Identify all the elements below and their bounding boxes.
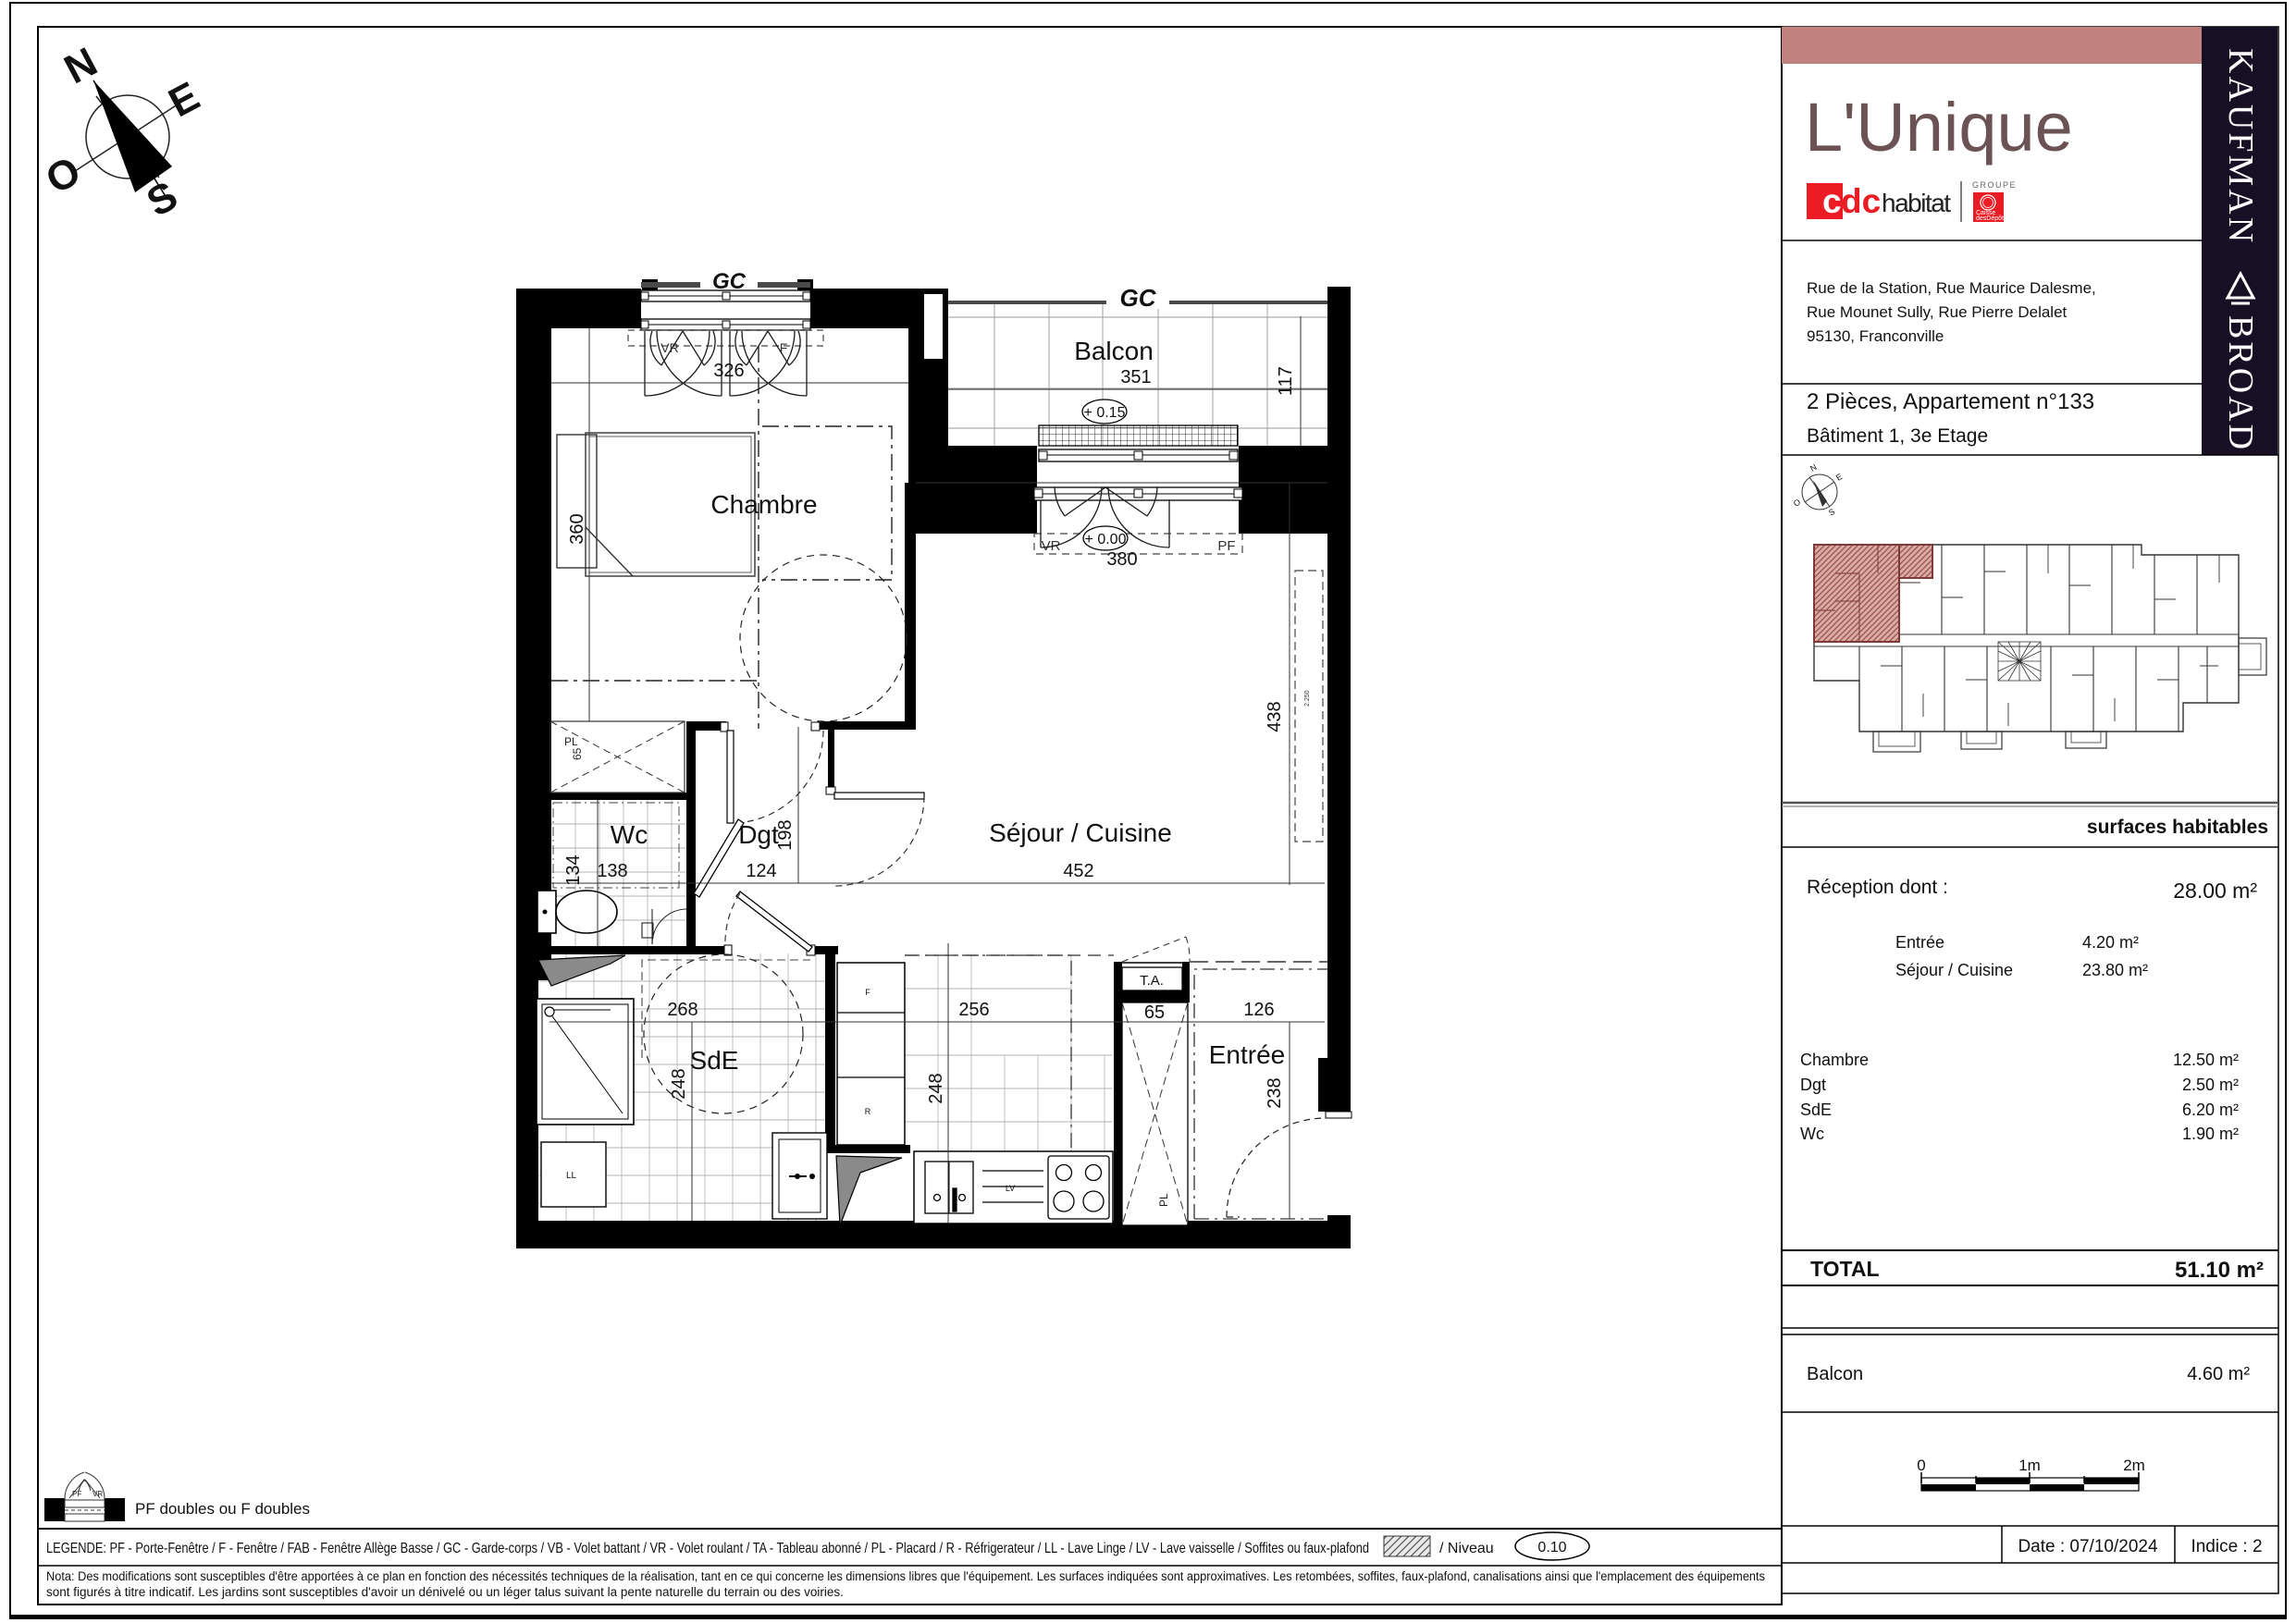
svg-text:SdE: SdE bbox=[1800, 1100, 1832, 1119]
svg-text:248: 248 bbox=[926, 1073, 946, 1103]
svg-text:Bâtiment 1, 3e Etage: Bâtiment 1, 3e Etage bbox=[1807, 425, 1988, 447]
svg-text:Indice : 2: Indice : 2 bbox=[2191, 1537, 2262, 1556]
svg-text:Chambre: Chambre bbox=[1800, 1051, 1869, 1069]
svg-text:LL: LL bbox=[566, 1171, 577, 1181]
svg-text:VR: VR bbox=[93, 1490, 103, 1498]
svg-text:Rue Mounet Sully, Rue Pierre D: Rue Mounet Sully, Rue Pierre Delalet bbox=[1807, 303, 2068, 321]
svg-text:PF: PF bbox=[1217, 538, 1235, 554]
svg-text:95130, Franconville: 95130, Franconville bbox=[1807, 327, 1944, 345]
svg-text:360: 360 bbox=[567, 513, 587, 544]
svg-text:2.250: 2.250 bbox=[1304, 690, 1311, 707]
svg-text:Réception dont :: Réception dont : bbox=[1807, 877, 1948, 898]
svg-text:1m: 1m bbox=[2018, 1457, 2041, 1474]
svg-text:256: 256 bbox=[958, 1000, 989, 1020]
svg-text:+ 0.15: + 0.15 bbox=[1084, 405, 1126, 421]
svg-text:sont figurés à titre indicatif: sont figurés à titre indicatif. Les jard… bbox=[46, 1585, 844, 1599]
svg-text:GROUPE: GROUPE bbox=[1972, 180, 2017, 190]
svg-text:Chambre: Chambre bbox=[710, 490, 817, 519]
svg-text:LEGENDE: PF - Porte-Fenêtre /: LEGENDE: PF - Porte-Fenêtre / F - Fenêtr… bbox=[46, 1541, 1369, 1556]
svg-text:351: 351 bbox=[1120, 367, 1151, 387]
svg-text:Date : 07/10/2024: Date : 07/10/2024 bbox=[2018, 1537, 2157, 1556]
svg-text:452: 452 bbox=[1063, 861, 1093, 881]
svg-text:Wc: Wc bbox=[1800, 1125, 1824, 1143]
svg-text:65: 65 bbox=[571, 747, 584, 760]
svg-text:BROAD: BROAD bbox=[2221, 315, 2260, 452]
svg-text:Séjour / Cuisine: Séjour / Cuisine bbox=[989, 818, 1172, 847]
svg-text:PL: PL bbox=[564, 735, 578, 748]
svg-text:L'Unique: L'Unique bbox=[1805, 89, 2073, 166]
svg-text:2 Pièces, Appartement n°133: 2 Pièces, Appartement n°133 bbox=[1807, 389, 2094, 414]
svg-text:+ 0.00: + 0.00 bbox=[1085, 532, 1127, 547]
svg-text:LV: LV bbox=[1006, 1184, 1015, 1193]
svg-text:T.A.: T.A. bbox=[1140, 973, 1164, 989]
svg-text:248: 248 bbox=[669, 1068, 689, 1099]
svg-text:Entrée: Entrée bbox=[1895, 933, 1944, 952]
svg-text:SdE: SdE bbox=[690, 1046, 739, 1075]
svg-text:0: 0 bbox=[1917, 1457, 1925, 1474]
svg-text:desDépôts: desDépôts bbox=[1976, 215, 2007, 222]
svg-text:Séjour / Cuisine: Séjour / Cuisine bbox=[1895, 961, 2013, 979]
svg-text:Dgt: Dgt bbox=[1800, 1076, 1826, 1094]
svg-text:Nota: Des modifications sont s: Nota: Des modifications sont susceptible… bbox=[46, 1569, 1765, 1583]
svg-text:438: 438 bbox=[1265, 701, 1285, 732]
svg-text:0.10: 0.10 bbox=[1537, 1540, 1566, 1555]
svg-text:4.20 m²: 4.20 m² bbox=[2082, 933, 2139, 952]
svg-text:Entrée: Entrée bbox=[1209, 1040, 1286, 1069]
svg-text:dc: dc bbox=[1841, 182, 1881, 220]
svg-text:PF doubles ou F doubles: PF doubles ou F doubles bbox=[135, 1500, 310, 1518]
svg-text:238: 238 bbox=[1265, 1077, 1285, 1108]
svg-text:51.10 m²: 51.10 m² bbox=[2175, 1258, 2264, 1283]
svg-text:23.80 m²: 23.80 m² bbox=[2082, 961, 2148, 979]
svg-text:124: 124 bbox=[746, 861, 776, 881]
svg-text:c: c bbox=[1822, 182, 1842, 220]
svg-text:198: 198 bbox=[775, 819, 796, 850]
svg-text:117: 117 bbox=[1276, 366, 1296, 396]
svg-text:326: 326 bbox=[713, 361, 744, 381]
svg-text:/ Niveau: / Niveau bbox=[1439, 1541, 1494, 1556]
svg-text:2.50 m²: 2.50 m² bbox=[2182, 1076, 2239, 1094]
svg-text:surfaces habitables: surfaces habitables bbox=[2087, 817, 2268, 838]
svg-text:TOTAL: TOTAL bbox=[1810, 1257, 1880, 1281]
svg-text:1.90 m²: 1.90 m² bbox=[2182, 1125, 2239, 1143]
svg-text:Wc: Wc bbox=[611, 820, 648, 849]
svg-text:65: 65 bbox=[1144, 1002, 1165, 1023]
svg-text:268: 268 bbox=[667, 1000, 697, 1020]
svg-text:2m: 2m bbox=[2123, 1457, 2145, 1474]
svg-text:6.20 m²: 6.20 m² bbox=[2182, 1100, 2239, 1119]
svg-text:PF: PF bbox=[72, 1490, 81, 1498]
svg-text:4.60 m²: 4.60 m² bbox=[2187, 1364, 2250, 1384]
svg-text:R: R bbox=[865, 1107, 871, 1116]
svg-text:138: 138 bbox=[597, 861, 627, 881]
svg-text:12.50 m²: 12.50 m² bbox=[2173, 1051, 2239, 1069]
svg-text:134: 134 bbox=[563, 855, 584, 885]
svg-text:Dgt: Dgt bbox=[738, 820, 779, 849]
svg-text:Balcon: Balcon bbox=[1074, 337, 1154, 365]
svg-text:habitat: habitat bbox=[1882, 189, 1951, 217]
svg-text:F: F bbox=[865, 988, 870, 997]
svg-text:GC: GC bbox=[1120, 284, 1157, 312]
svg-text:PL: PL bbox=[1157, 1193, 1170, 1207]
svg-text:KAUFMAN: KAUFMAN bbox=[2221, 48, 2260, 245]
svg-text:380: 380 bbox=[1106, 549, 1137, 570]
svg-text:126: 126 bbox=[1243, 1000, 1274, 1020]
svg-text:Rue de la Station, Rue Maurice: Rue de la Station, Rue Maurice Dalesme, bbox=[1807, 279, 2096, 297]
svg-text:Balcon: Balcon bbox=[1807, 1364, 1863, 1384]
svg-text:28.00 m²: 28.00 m² bbox=[2173, 879, 2257, 903]
